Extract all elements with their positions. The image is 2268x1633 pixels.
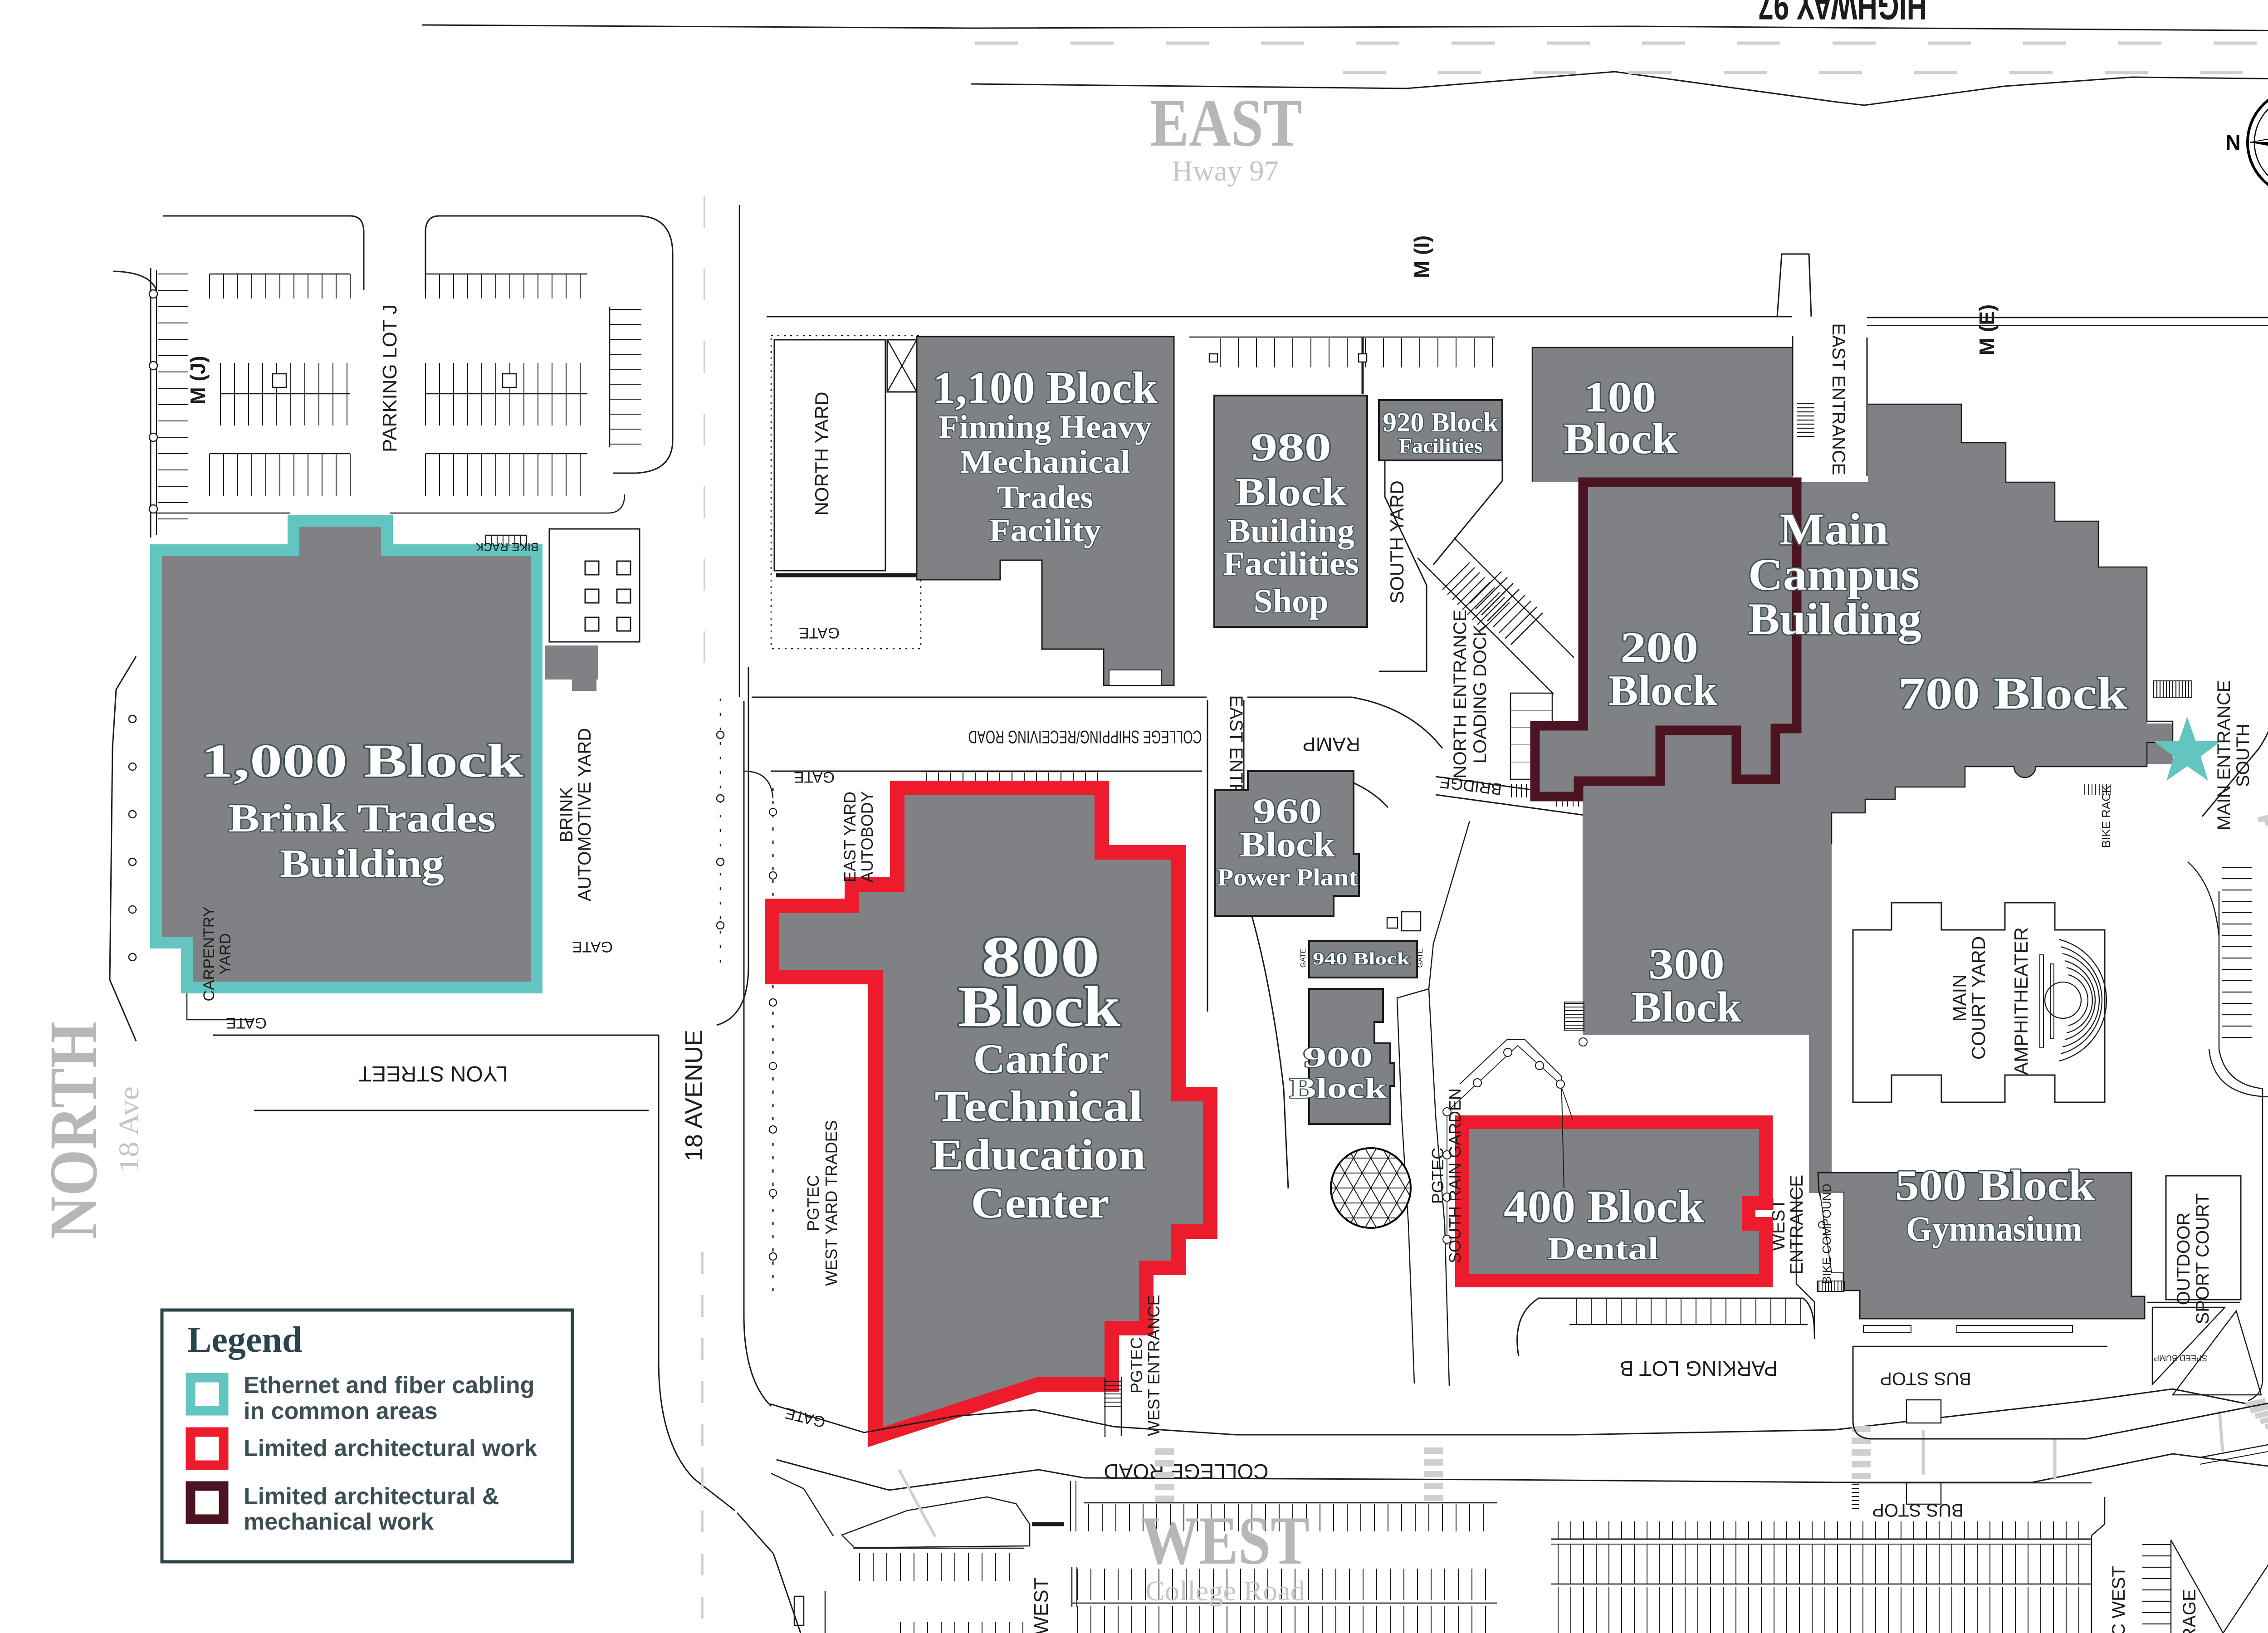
svg-text:NORTH ENTRANCE: NORTH ENTRANCE: [1450, 610, 1470, 779]
svg-text:M (I): M (I): [1410, 235, 1433, 279]
svg-text:EAST ENTRANCE: EAST ENTRANCE: [1828, 323, 1848, 475]
svg-text:AUTOMOTIVE YARD: AUTOMOTIVE YARD: [575, 728, 595, 901]
svg-text:18 Ave: 18 Ave: [114, 1086, 145, 1173]
svg-text:Block: Block: [1290, 1072, 1387, 1104]
svg-text:Building: Building: [1227, 513, 1354, 550]
svg-text:940 Block: 940 Block: [1313, 949, 1410, 968]
svg-text:GATE: GATE: [799, 624, 840, 641]
svg-text:N: N: [2225, 131, 2240, 154]
svg-text:mechanical work: mechanical work: [244, 1509, 434, 1535]
svg-text:Ethernet and fiber cabling: Ethernet and fiber cabling: [244, 1372, 534, 1398]
svg-text:BIKE RACK: BIKE RACK: [2099, 785, 2113, 848]
svg-text:Hway 97: Hway 97: [1172, 155, 1279, 187]
svg-text:PARKING LOT J: PARKING LOT J: [379, 304, 401, 452]
svg-text:Campus: Campus: [1748, 549, 1920, 600]
svg-text:BIKE RACK: BIKE RACK: [475, 540, 538, 554]
svg-text:LOADING DOCK: LOADING DOCK: [1470, 624, 1490, 763]
svg-text:Block: Block: [958, 974, 1120, 1039]
svg-text:Facilities: Facilities: [1399, 434, 1483, 457]
svg-text:900: 900: [1304, 1041, 1373, 1073]
svg-text:700 Block: 700 Block: [1898, 668, 2127, 719]
svg-text:PGTEC: PGTEC: [804, 1175, 822, 1231]
svg-text:PGTEC: PGTEC: [1127, 1337, 1146, 1393]
svg-text:Brink Trades: Brink Trades: [228, 797, 496, 841]
svg-text:COLLEGE SHIPPING/RECEIVING ROA: COLLEGE SHIPPING/RECEIVING ROAD: [968, 727, 1202, 747]
svg-text:CARPENTRY: CARPENTRY: [200, 906, 218, 1001]
svg-text:Center: Center: [971, 1178, 1110, 1227]
svg-text:BIKE COMPOUND: BIKE COMPOUND: [1820, 1183, 1833, 1284]
svg-text:Main: Main: [1779, 504, 1888, 554]
svg-text:Shop: Shop: [1254, 583, 1329, 620]
svg-text:College Road: College Road: [1145, 1576, 1305, 1607]
svg-text:Education: Education: [931, 1130, 1146, 1179]
svg-text:SOUTH: SOUTH: [2233, 724, 2253, 787]
svg-text:GATE: GATE: [226, 1014, 267, 1032]
svg-text:GATE: GATE: [1417, 949, 1424, 968]
svg-text:Block: Block: [1240, 825, 1335, 864]
svg-text:HIGHWAY 97: HIGHWAY 97: [1758, 0, 1927, 27]
svg-text:Finning Heavy: Finning Heavy: [938, 409, 1152, 445]
svg-text:Dental: Dental: [1548, 1232, 1659, 1266]
svg-text:Block: Block: [1564, 415, 1678, 463]
svg-text:Block: Block: [1632, 983, 1741, 1031]
svg-text:300: 300: [1648, 940, 1725, 988]
svg-text:RAGE: RAGE: [2180, 1589, 2200, 1633]
svg-text:OUTDOOR: OUTDOOR: [2174, 1213, 2194, 1305]
svg-text:Building: Building: [1748, 594, 1921, 644]
svg-text:EAST: EAST: [1150, 85, 1302, 161]
svg-text:WEST: WEST: [1141, 1502, 1310, 1579]
svg-text:1,000 Block: 1,000 Block: [201, 735, 523, 787]
svg-text:18 AVENUE: 18 AVENUE: [680, 1030, 708, 1161]
svg-text:LYON STREET: LYON STREET: [358, 1061, 508, 1085]
svg-text:BUS STOP: BUS STOP: [1872, 1500, 1964, 1520]
svg-text:YARD: YARD: [217, 933, 234, 975]
svg-text:GATE: GATE: [794, 768, 835, 786]
svg-text:Limited architectural work: Limited architectural work: [244, 1435, 537, 1462]
svg-text:100: 100: [1584, 373, 1656, 421]
svg-text:200: 200: [1620, 623, 1698, 671]
svg-text:Gymnasium: Gymnasium: [1906, 1209, 2082, 1248]
svg-text:M (J): M (J): [186, 356, 210, 404]
svg-text:Building: Building: [280, 842, 444, 886]
svg-text:Canfor: Canfor: [973, 1036, 1109, 1082]
svg-text:Trades: Trades: [997, 479, 1093, 515]
svg-text:WEST ENTRANCE: WEST ENTRANCE: [1144, 1295, 1163, 1436]
svg-text:SPEED BUMP: SPEED BUMP: [2154, 1354, 2207, 1363]
svg-text:PGTEC: PGTEC: [1428, 1148, 1447, 1204]
svg-text:400 Block: 400 Block: [1504, 1181, 1704, 1232]
svg-text:Power Plant: Power Plant: [1217, 864, 1358, 891]
svg-text:SOUTH YARD: SOUTH YARD: [1386, 480, 1408, 603]
svg-text:NORTH YARD: NORTH YARD: [811, 391, 832, 515]
svg-text:Facilities: Facilities: [1223, 545, 1359, 582]
svg-text:RAMP: RAMP: [1302, 733, 1360, 755]
svg-text:920 Block: 920 Block: [1383, 407, 1499, 437]
svg-text:BUS STOP: BUS STOP: [1880, 1369, 1971, 1389]
svg-text:Block: Block: [1236, 470, 1347, 514]
svg-text:SPORT COURT: SPORT COURT: [2193, 1193, 2213, 1325]
svg-text:Technical: Technical: [935, 1082, 1143, 1130]
svg-text:SOUTH RAIN GARDEN: SOUTH RAIN GARDEN: [1446, 1088, 1464, 1263]
svg-text:Block: Block: [1608, 666, 1717, 714]
svg-text:500 Block: 500 Block: [1895, 1161, 2095, 1209]
svg-text:COLLEGE ROAD: COLLEGE ROAD: [1104, 1460, 1269, 1483]
svg-text:AUTOBODY: AUTOBODY: [858, 791, 876, 882]
svg-text:GATE: GATE: [572, 938, 613, 955]
svg-text:MAIN ENTRANCE: MAIN ENTRANCE: [2214, 680, 2234, 830]
svg-text:NORTH WEST: NORTH WEST: [1030, 1578, 1052, 1633]
svg-text:1,100 Block: 1,100 Block: [933, 362, 1158, 413]
svg-text:NORTH: NORTH: [36, 1022, 111, 1239]
svg-text:Legend: Legend: [187, 1320, 302, 1360]
svg-text:BRINK: BRINK: [557, 787, 577, 843]
svg-text:WEST YARD TRADES: WEST YARD TRADES: [822, 1120, 841, 1286]
svg-text:Facility: Facility: [989, 512, 1101, 548]
svg-text:EAST YARD: EAST YARD: [841, 792, 859, 882]
svg-text:Mechanical: Mechanical: [960, 444, 1130, 480]
svg-text:PARKING LOT B: PARKING LOT B: [1620, 1357, 1778, 1380]
svg-text:in common areas: in common areas: [244, 1398, 438, 1424]
svg-text:Limited architectural &: Limited architectural &: [244, 1483, 499, 1510]
svg-text:COURT YARD: COURT YARD: [1968, 936, 1989, 1060]
svg-text:C WEST: C WEST: [2109, 1566, 2129, 1633]
svg-text:MAIN: MAIN: [1949, 974, 1970, 1022]
svg-text:AMPHITHEATER: AMPHITHEATER: [2010, 927, 2032, 1075]
svg-text:980: 980: [1251, 425, 1331, 469]
svg-text:M (E): M (E): [1975, 304, 1999, 355]
svg-text:GATE: GATE: [1300, 949, 1307, 968]
